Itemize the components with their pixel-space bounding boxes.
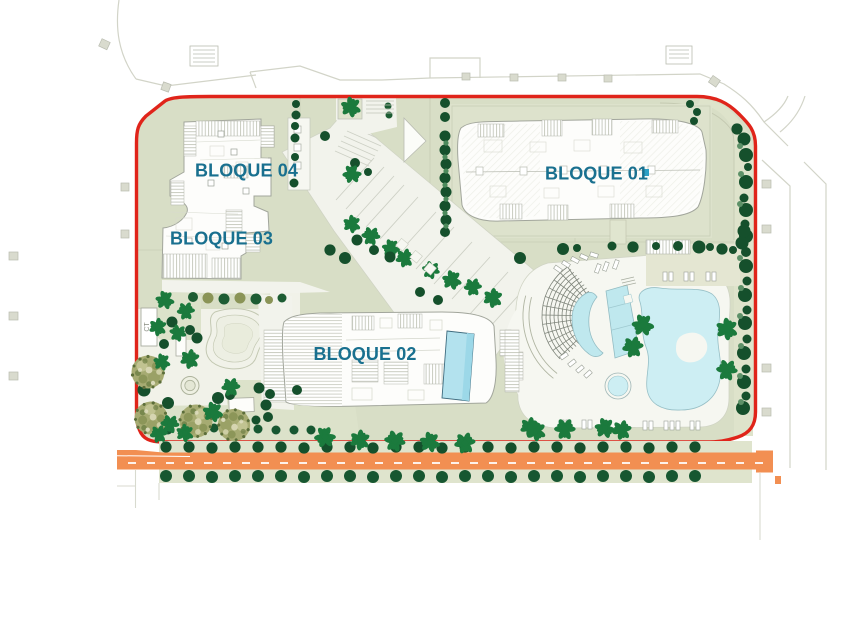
svg-text:BLOQUE 03: BLOQUE 03: [170, 229, 273, 249]
svg-text:BLOQUE 01: BLOQUE 01: [545, 164, 648, 184]
svg-text:BLOQUE 04: BLOQUE 04: [195, 161, 298, 181]
svg-text:BLOQUE 02: BLOQUE 02: [314, 344, 417, 364]
